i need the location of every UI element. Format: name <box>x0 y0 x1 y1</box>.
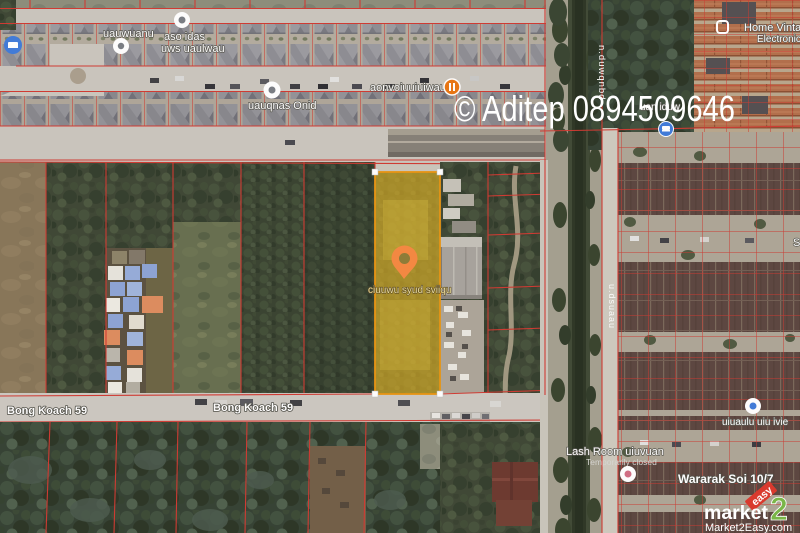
svg-text:market: market <box>704 502 768 524</box>
svg-text:Market2Easy.com: Market2Easy.com <box>705 522 792 533</box>
svg-text:© Aditep 0894509646: © Aditep 0894509646 <box>454 88 735 129</box>
